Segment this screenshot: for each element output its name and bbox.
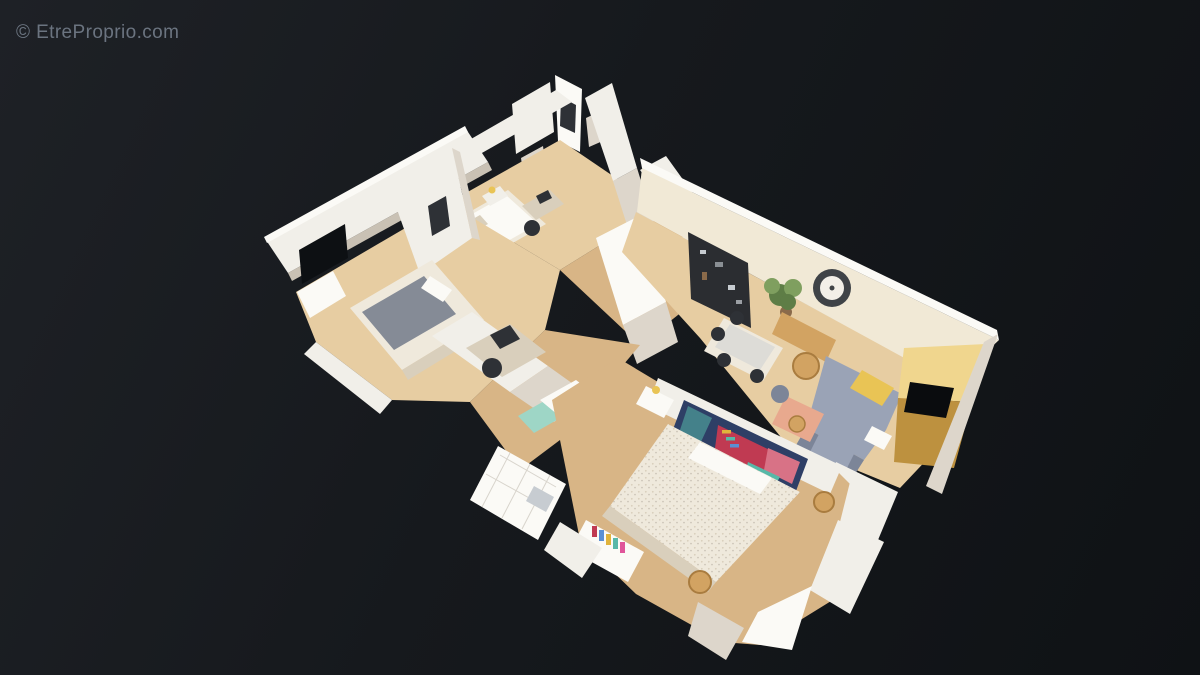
wall-clock-centre — [830, 286, 835, 291]
office-chair — [482, 358, 502, 378]
wooden-stool — [814, 492, 834, 512]
shelf-dark-opening — [904, 382, 954, 418]
grey-pouf — [771, 385, 789, 403]
rattan-stool — [793, 353, 819, 379]
dollhouse-3d-view[interactable] — [0, 0, 1200, 675]
watermark: © EtreProprio.com — [16, 22, 179, 44]
lamp — [652, 386, 660, 394]
wooden-chair — [789, 416, 805, 432]
wooden-stool — [689, 571, 711, 593]
desk-chair — [524, 220, 540, 236]
tiled-floor — [470, 446, 566, 540]
lamp — [489, 187, 496, 194]
screenshot-root: © EtreProprio.com — [0, 0, 1200, 675]
